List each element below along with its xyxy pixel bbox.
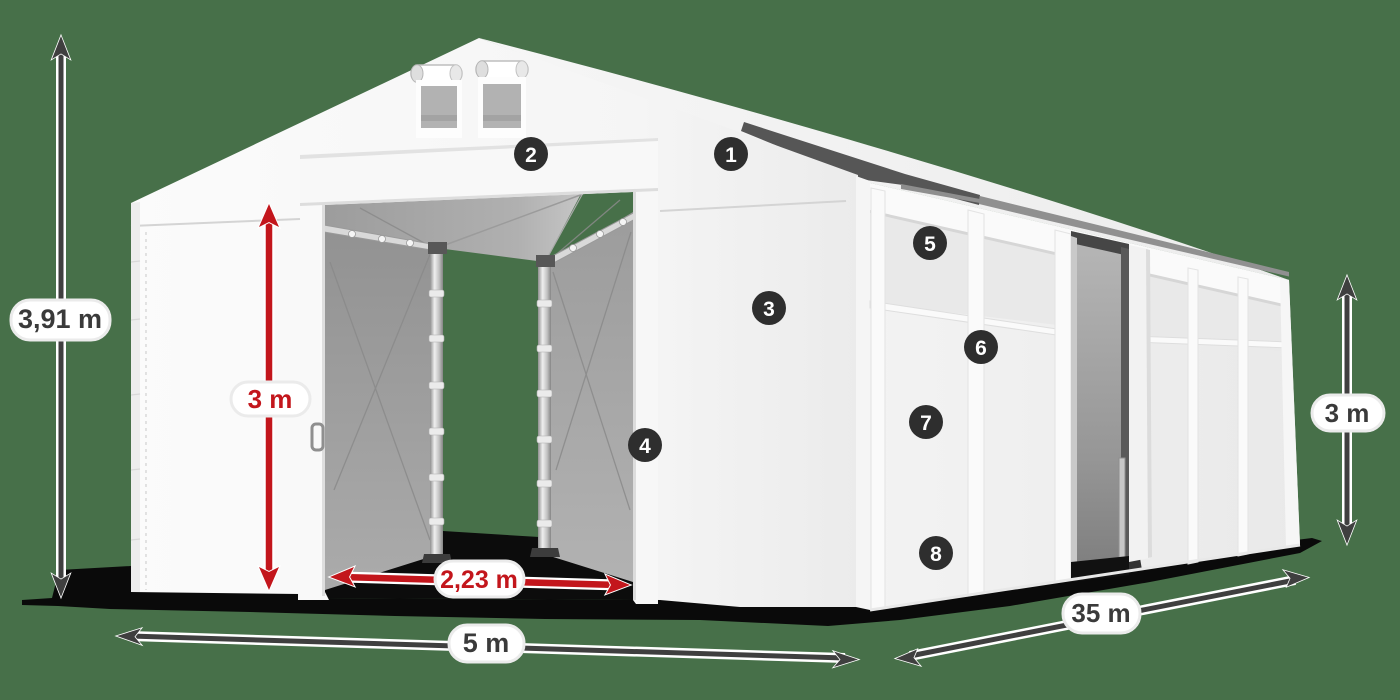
svg-text:35 m: 35 m: [1071, 598, 1130, 628]
svg-text:4: 4: [639, 435, 651, 458]
svg-text:3: 3: [763, 298, 775, 321]
svg-text:5: 5: [924, 233, 936, 256]
svg-text:2,23 m: 2,23 m: [440, 566, 518, 594]
svg-text:8: 8: [930, 543, 942, 566]
svg-text:5 m: 5 m: [463, 628, 510, 658]
svg-text:3,91 m: 3,91 m: [18, 304, 102, 334]
svg-text:3 m: 3 m: [248, 384, 293, 414]
svg-text:2: 2: [525, 144, 537, 167]
svg-text:3 m: 3 m: [1325, 398, 1370, 428]
svg-text:7: 7: [920, 412, 932, 435]
svg-text:1: 1: [725, 144, 737, 167]
svg-text:6: 6: [975, 337, 987, 360]
